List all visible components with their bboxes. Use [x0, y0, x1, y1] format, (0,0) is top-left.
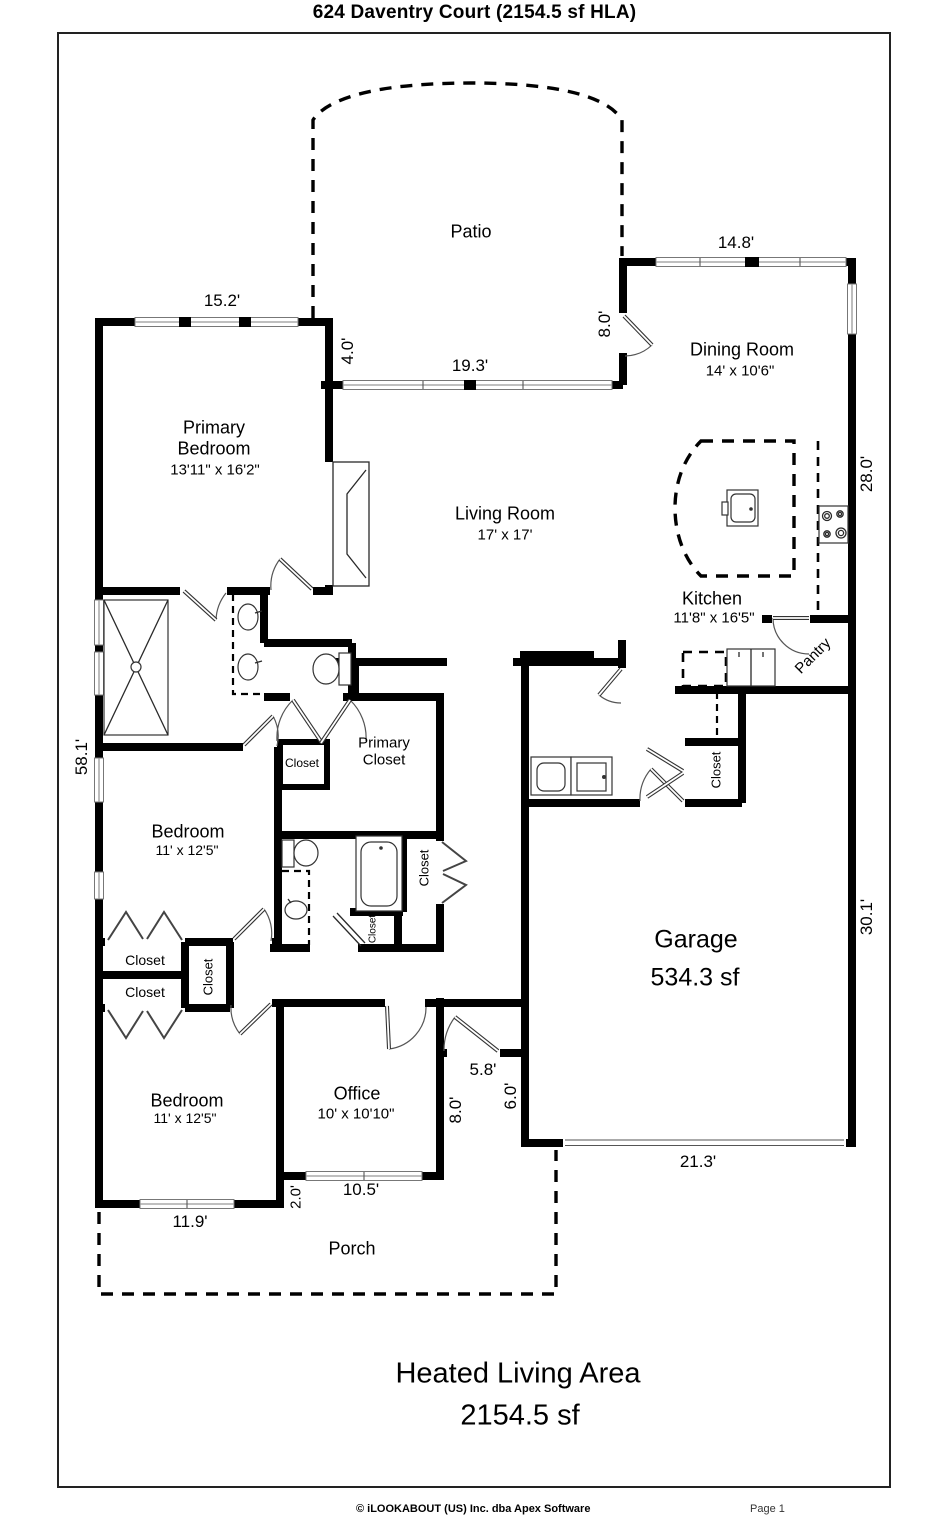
room-label-bedroom-upper: Bedroom — [151, 822, 224, 843]
room-label-closet-1: Closet — [125, 952, 165, 968]
room-label-closet-garage-entry: Closet — [709, 752, 724, 789]
room-dims-living: 17' x 17' — [478, 527, 533, 544]
dim-living-north: 19.3' — [452, 356, 488, 376]
window-bedroom-south — [140, 1200, 234, 1209]
island-sink — [722, 490, 758, 526]
room-label-closet-tub: Closet — [368, 915, 379, 943]
dim-bedroom-south: 11.9' — [172, 1212, 207, 1232]
room-dims-dining: 14' x 10'6" — [706, 363, 775, 380]
room-label-closet-2: Closet — [125, 984, 165, 1000]
fireplace — [333, 462, 369, 586]
room-label-primary-bedroom-1: Primary — [183, 418, 245, 439]
room-dims-primary-bedroom: 13'11" x 16'2" — [170, 462, 260, 479]
footer-page-number: Page 1 — [750, 1503, 785, 1515]
vanity-sinks — [238, 604, 262, 680]
patio-outline — [313, 83, 622, 318]
room-label-primary-closet-1: Primary — [358, 735, 410, 752]
dim-dining-top: 14.8' — [718, 233, 754, 253]
dim-entry-right: 6.0' — [501, 1083, 521, 1110]
dim-garage-east: 30.1' — [857, 899, 877, 935]
dim-primary-top: 15.2' — [204, 291, 240, 311]
room-label-kitchen: Kitchen — [682, 589, 742, 610]
room-label-primary-closet-2: Closet — [363, 752, 406, 769]
room-dims-bedroom-upper: 11' x 12'5" — [156, 842, 219, 858]
shower — [104, 600, 168, 735]
room-area-garage: 534.3 sf — [651, 964, 740, 993]
room-label-office: Office — [334, 1084, 381, 1105]
room-label-porch: Porch — [328, 1239, 375, 1260]
room-label-dining: Dining Room — [690, 340, 794, 361]
dim-office-jog: 2.0' — [288, 1185, 305, 1209]
room-label-patio: Patio — [450, 222, 491, 243]
garage-door — [563, 1137, 846, 1149]
refrigerator-space-outline — [683, 652, 726, 686]
refrigerator — [727, 649, 775, 686]
stove — [819, 506, 848, 543]
room-dims-kitchen: 11'8" x 16'5" — [673, 610, 754, 627]
room-label-garage: Garage — [654, 926, 737, 955]
window-living-north — [343, 380, 612, 390]
dim-entry-width: 5.8' — [470, 1060, 497, 1080]
floor-plan-page: 624 Daventry Court (2154.5 sf HLA) — [0, 0, 949, 1536]
summary-heated-living-area-value: 2154.5 sf — [460, 1400, 579, 1433]
dim-west-side: 58.1' — [72, 739, 92, 775]
room-label-primary-bedroom-2: Bedroom — [177, 439, 250, 460]
toilet-primary — [313, 653, 351, 685]
room-label-living: Living Room — [455, 504, 555, 525]
sink-bath2 — [285, 899, 307, 919]
room-dims-office: 10' x 10'10" — [318, 1106, 395, 1123]
room-dims-bedroom-lower: 11' x 12'5" — [154, 1110, 217, 1126]
summary-heated-living-area: Heated Living Area — [395, 1358, 640, 1391]
footer-copyright: © iLOOKABOUT (US) Inc. dba Apex Software — [356, 1503, 590, 1515]
dim-east-upper: 28.0' — [857, 456, 877, 492]
dim-garage-south: 21.3' — [680, 1152, 716, 1172]
toilet-bath2 — [282, 840, 318, 867]
room-label-bedroom-lower: Bedroom — [150, 1091, 223, 1112]
window-primary-top — [135, 317, 298, 327]
dim-office-south: 10.5' — [343, 1180, 379, 1200]
room-label-closet-bath: Closet — [417, 850, 432, 887]
room-label-closet-mid: Closet — [201, 959, 216, 996]
room-label-closet-hall: Closet — [285, 756, 319, 770]
dim-patio-right: 8.0' — [595, 311, 615, 338]
bathtub — [356, 836, 402, 911]
dim-patio-left-jog: 4.0' — [338, 338, 358, 365]
washer-dryer — [531, 757, 612, 795]
dim-entry-left: 8.0' — [446, 1097, 466, 1124]
window-dining-east — [848, 284, 857, 334]
window-dining-north — [656, 257, 846, 267]
